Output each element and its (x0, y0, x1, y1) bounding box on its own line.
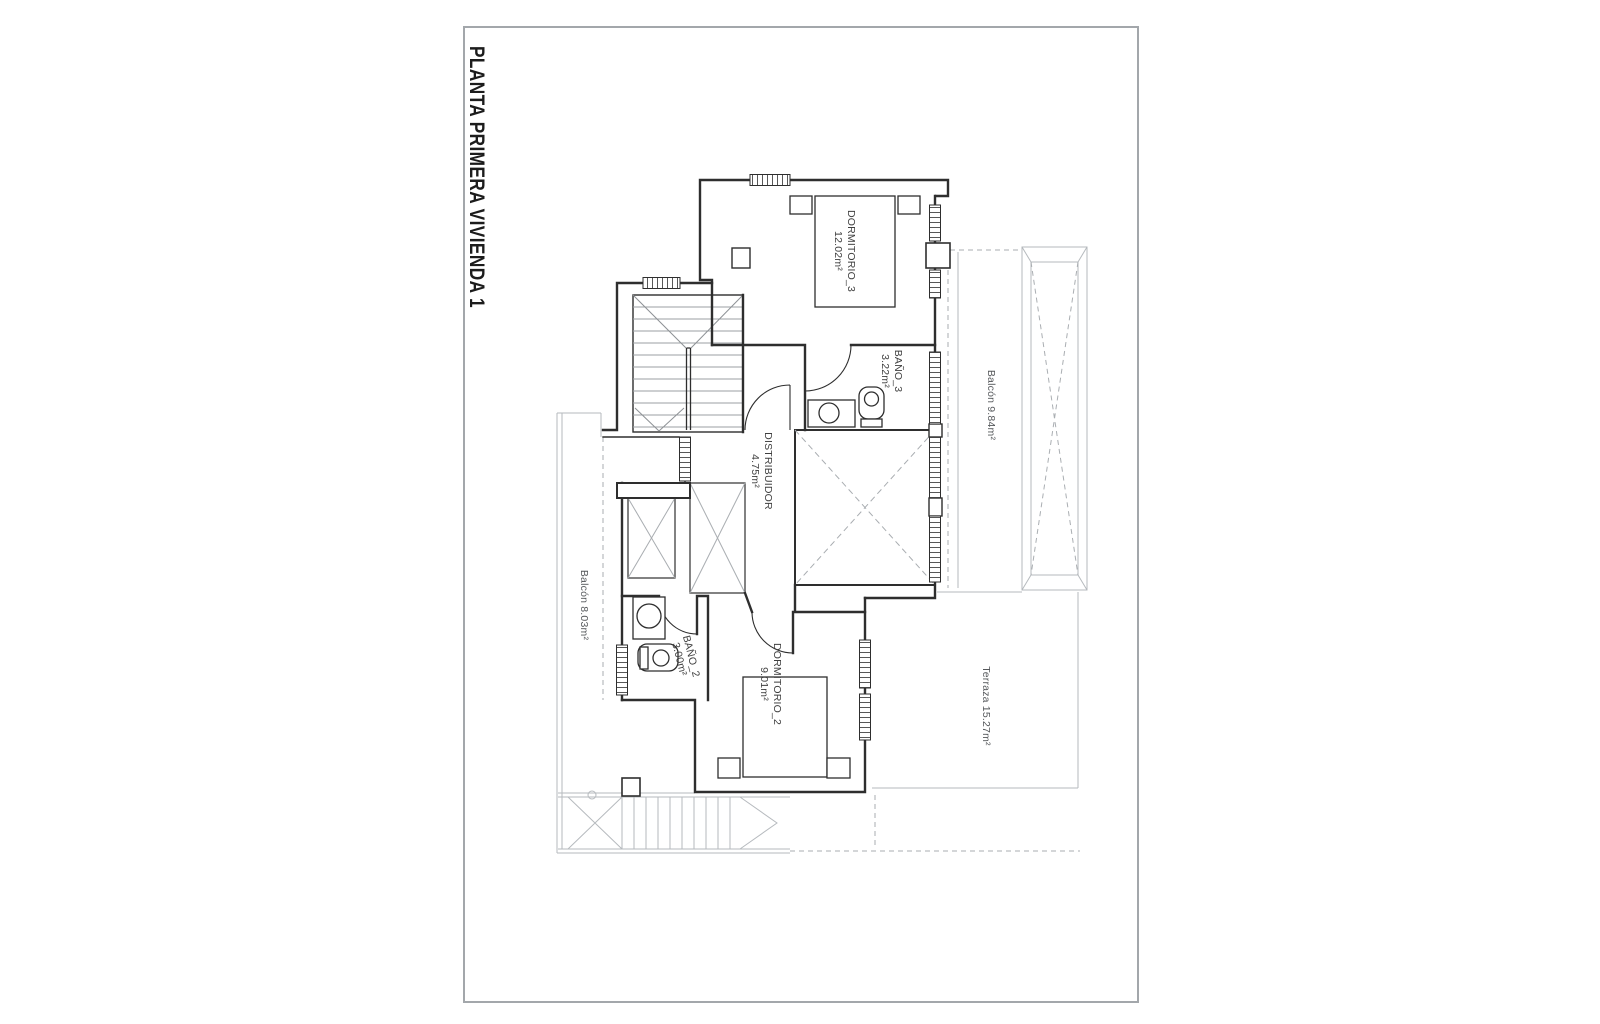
bed-icon (743, 677, 827, 777)
staircase-upper (633, 295, 743, 432)
door-arc-bano3 (805, 345, 851, 391)
toilet-icon (859, 387, 884, 427)
room-area-dormitorio-3: 12.02m² (832, 231, 844, 271)
drawing-frame (464, 27, 1138, 1002)
window-icon (930, 437, 941, 498)
wardrobe-left-icon (628, 498, 675, 578)
room-name-bano-3: BAÑO_3 (892, 350, 905, 393)
window-icon (750, 175, 790, 186)
sink-icon (633, 597, 665, 639)
room-area-dormitorio-2: 9.01m² (758, 667, 770, 701)
floor-plan-svg: PLANTA PRIMERA VIVIENDA 1 (0, 0, 1600, 1024)
window-icon (930, 270, 941, 298)
window-icon (617, 645, 628, 695)
window-icon (930, 352, 941, 424)
balcony-right-label: Balcón 9.84m² (985, 370, 997, 441)
floor-plan-page: PLANTA PRIMERA VIVIENDA 1 (0, 0, 1600, 1024)
wardrobe-right-icon (690, 483, 745, 593)
nightstand-icon (827, 758, 850, 778)
room-name-dormitorio-3: DORMITORIO_3 (845, 210, 857, 292)
stair-direction-arrow (568, 797, 777, 849)
nightstand-icon (898, 196, 920, 214)
plan-title: PLANTA PRIMERA VIVIENDA 1 (465, 46, 488, 308)
window-icon (680, 437, 691, 481)
pillar-block (622, 778, 640, 796)
window-icon (643, 278, 680, 289)
room-area-distribuidor: 4.75m² (749, 454, 761, 488)
window-icon (930, 516, 941, 582)
terraza-label: Terraza 15.27m² (980, 666, 992, 746)
terraza-boundary (872, 592, 1078, 788)
sink-icon (808, 400, 855, 427)
void-x-brace (795, 430, 935, 585)
nightstand-icon (790, 196, 812, 214)
window-icon (860, 640, 871, 688)
window-icon (930, 205, 941, 241)
pergola-x-brace (1031, 262, 1078, 575)
room-area-bano-3: 3.22m² (879, 354, 891, 388)
duct-box (732, 248, 750, 268)
room-name-distribuidor: DISTRIBUIDOR (762, 432, 774, 510)
nightstand-icon (718, 758, 740, 778)
window-icon (860, 694, 871, 740)
door-arc-distribuidor (745, 385, 790, 430)
balcony-left-label: Balcón 8.03m² (578, 570, 590, 641)
pergola-frame (1022, 247, 1087, 590)
room-name-dormitorio-2: DORMITORIO_2 (771, 643, 783, 725)
